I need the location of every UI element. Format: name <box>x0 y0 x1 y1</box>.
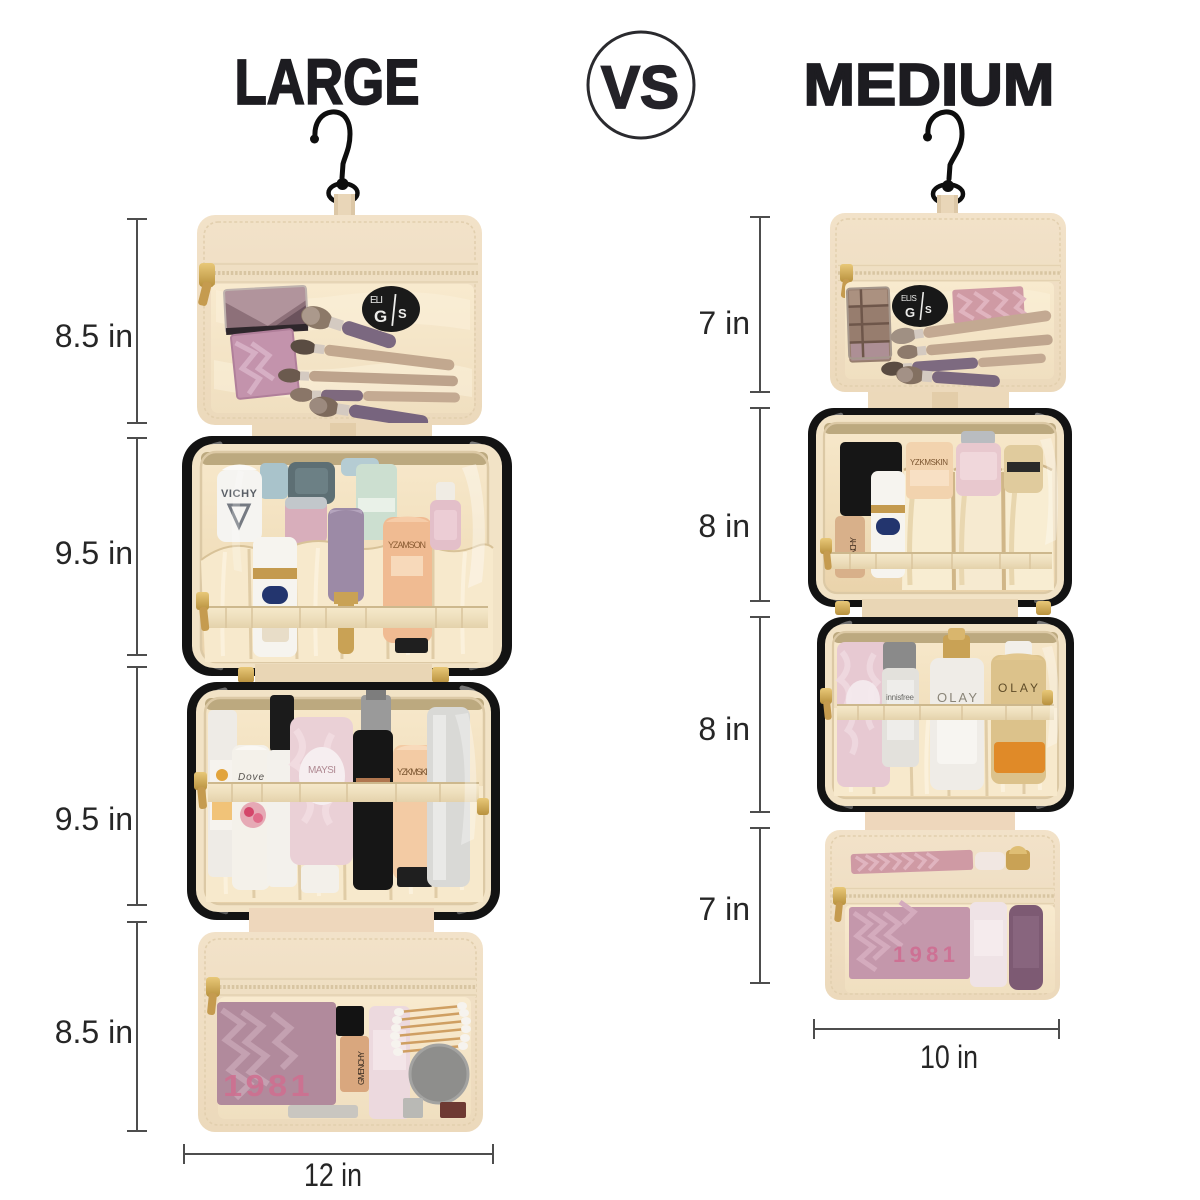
svg-text:G: G <box>374 307 387 326</box>
svg-text:9.5 in: 9.5 in <box>55 535 133 571</box>
svg-text:S: S <box>398 306 407 321</box>
svg-text:VS: VS <box>601 54 679 121</box>
svg-text:10 in: 10 in <box>920 1039 978 1075</box>
svg-text:8 in: 8 in <box>698 711 750 747</box>
svg-text:8 in: 8 in <box>698 508 750 544</box>
svg-text:YZKMSKIN: YZKMSKIN <box>910 458 948 467</box>
svg-text:MAYSI: MAYSI <box>308 765 336 776</box>
svg-text:LARGE: LARGE <box>235 46 420 118</box>
svg-text:MEDIUM: MEDIUM <box>804 52 1055 118</box>
svg-text:ELIS: ELIS <box>901 294 917 303</box>
svg-text:8.5 in: 8.5 in <box>55 1014 133 1050</box>
svg-text:12 in: 12 in <box>304 1157 362 1193</box>
svg-text:innisfree: innisfree <box>886 693 915 702</box>
svg-text:1981: 1981 <box>223 1068 313 1103</box>
svg-text:8.5 in: 8.5 in <box>55 318 133 354</box>
svg-text:7 in: 7 in <box>698 891 750 927</box>
svg-text:GIVENCHY: GIVENCHY <box>357 1050 366 1085</box>
svg-text:YZAMSON: YZAMSON <box>388 540 426 550</box>
svg-text:G: G <box>905 305 915 320</box>
svg-text:7 in: 7 in <box>698 305 750 341</box>
svg-text:ELI: ELI <box>370 295 382 306</box>
svg-text:S: S <box>925 305 932 316</box>
svg-text:9.5 in: 9.5 in <box>55 801 133 837</box>
svg-text:Dove: Dove <box>238 772 264 783</box>
